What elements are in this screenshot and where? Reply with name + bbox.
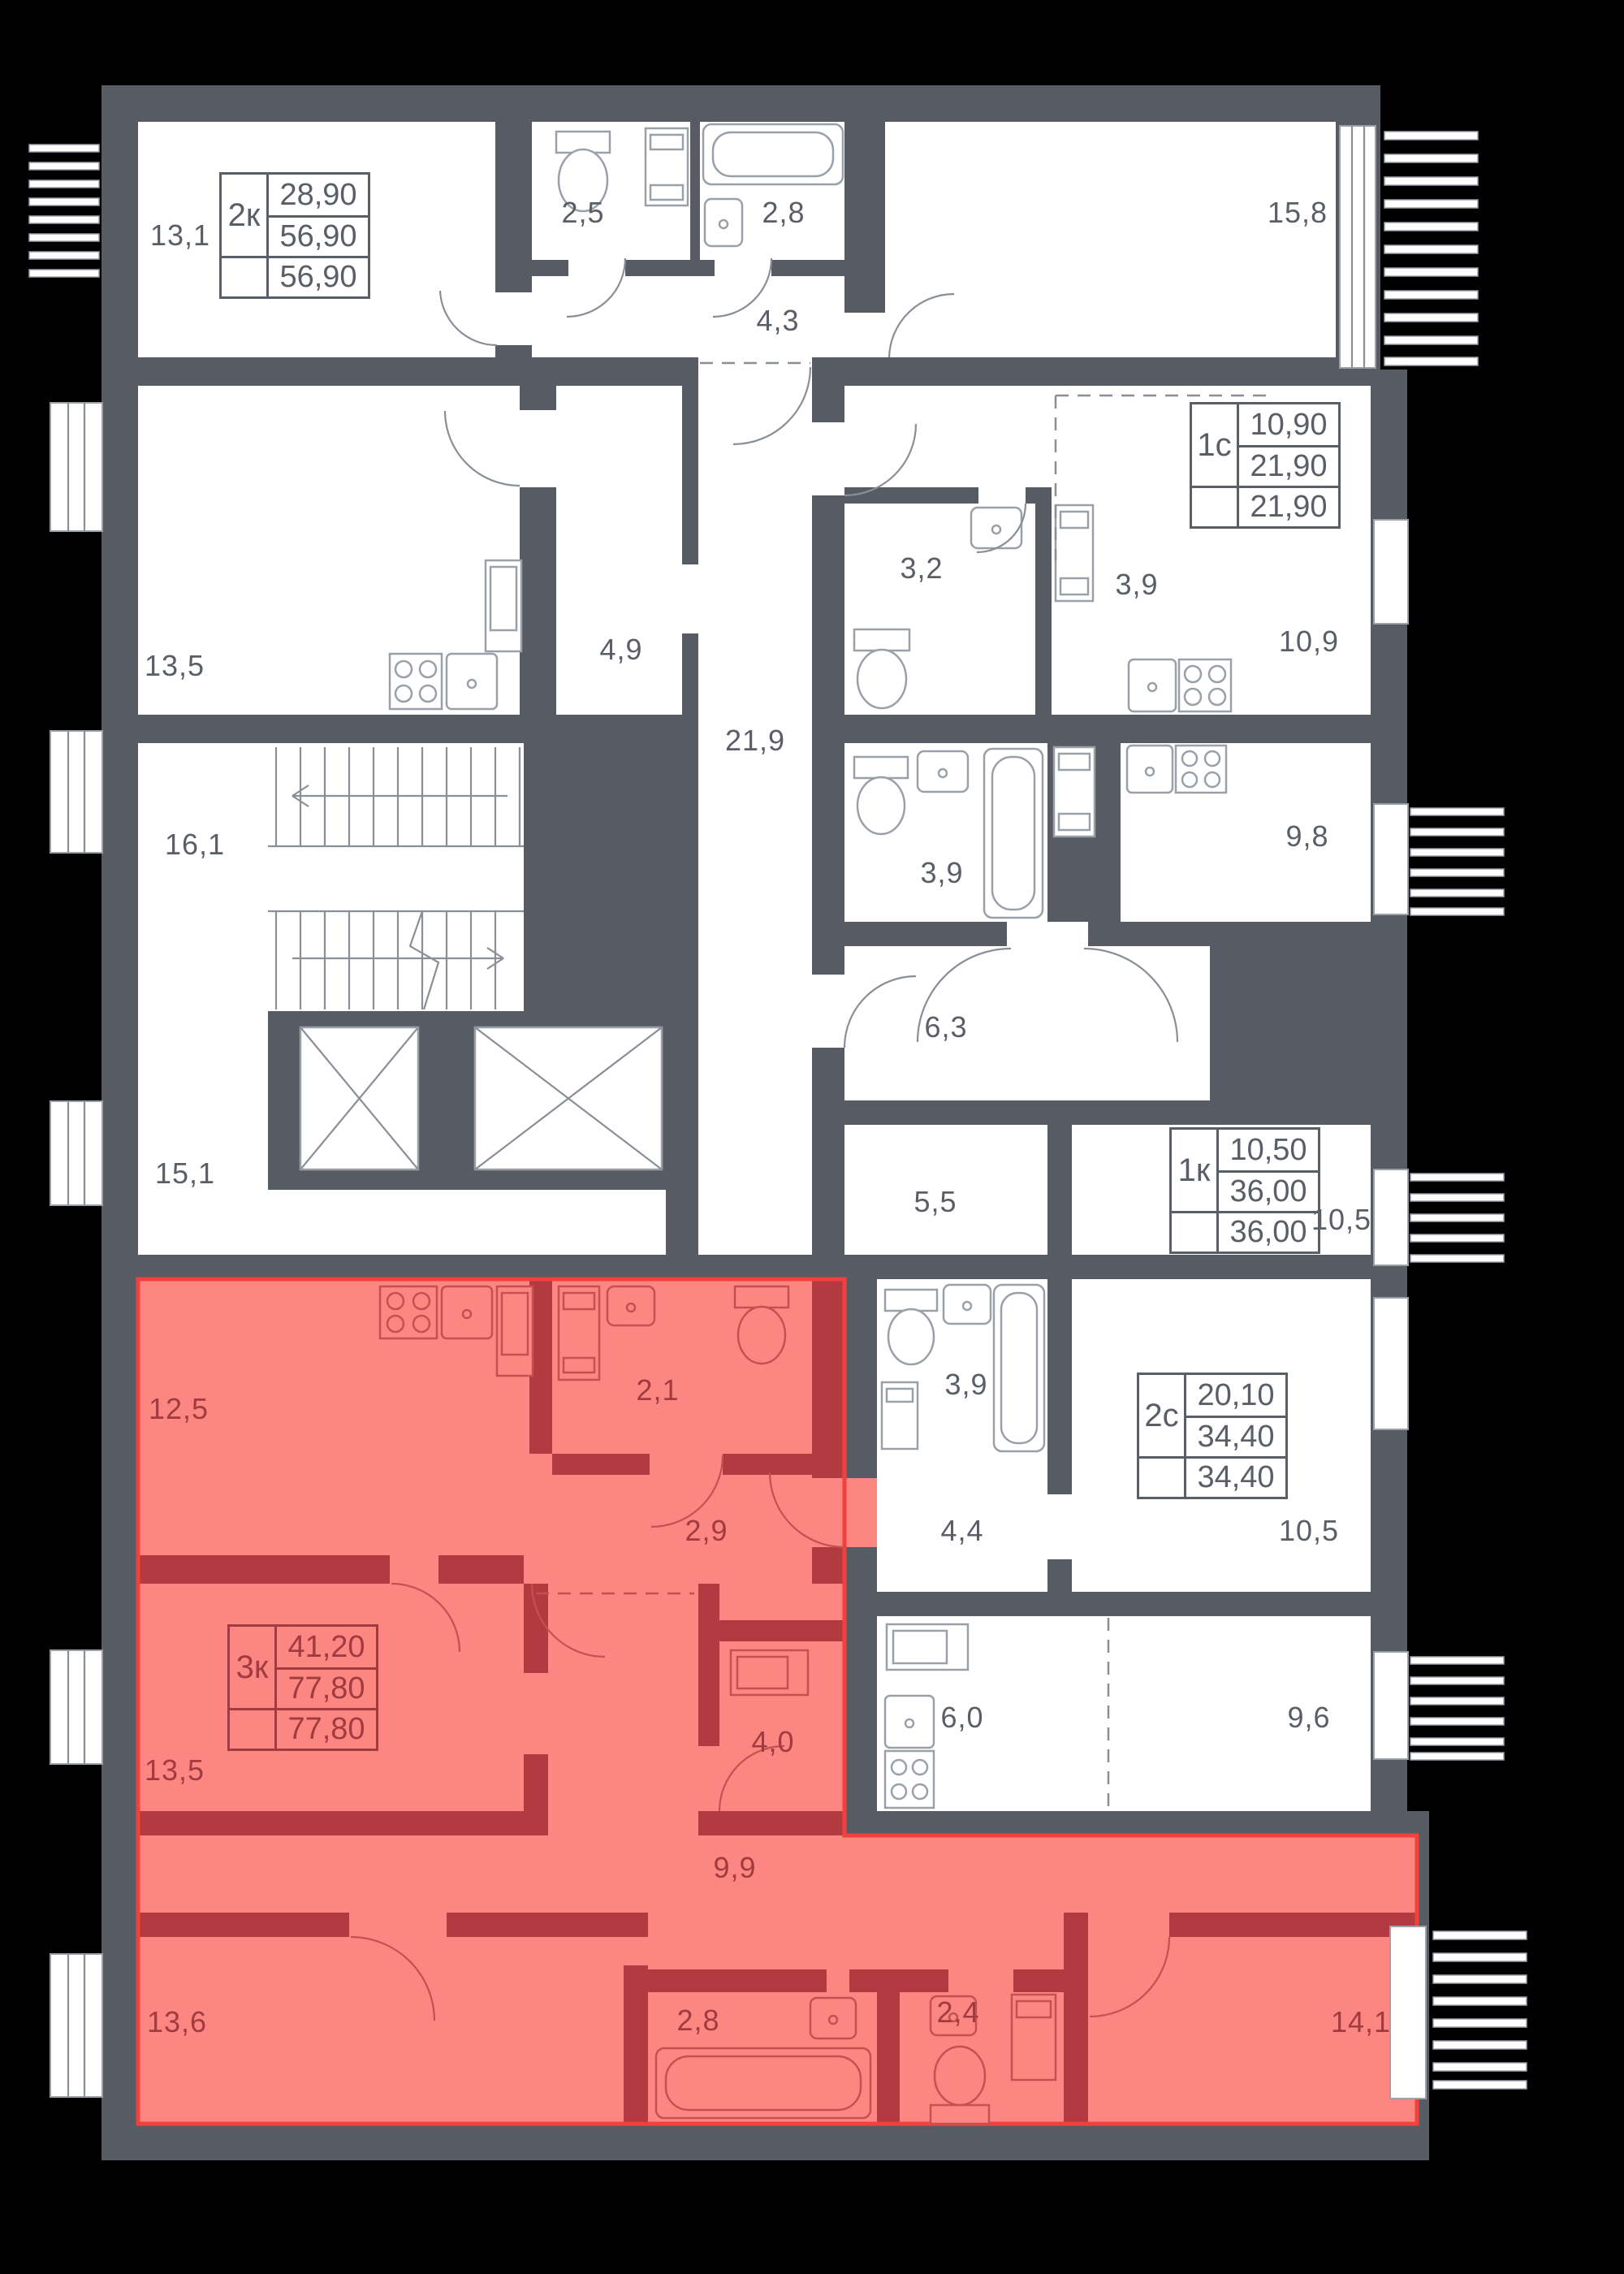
apartment-living-area: 20,10 <box>1186 1375 1285 1416</box>
apartment-type-spacer <box>1172 1211 1219 1252</box>
apartment-type-spacer <box>230 1708 277 1749</box>
apartment-type-label: 2с <box>1139 1375 1186 1456</box>
apartment-total-area: 21,90 <box>1239 486 1338 526</box>
room-area-label: 2,8 <box>762 196 805 230</box>
room-area-label: 2,4 <box>936 1995 979 2030</box>
room-area-label: 4,3 <box>756 304 799 338</box>
apartment-table-2s: 2с 20,10 34,40 34,40 <box>1137 1373 1288 1499</box>
room-area-label: 2,5 <box>561 196 604 230</box>
room-area-label: 13,5 <box>145 1753 205 1788</box>
apartment-total-area: 56,90 <box>269 256 368 296</box>
apartment-living-area: 10,50 <box>1219 1130 1318 1170</box>
room-area-label: 12,5 <box>149 1392 209 1426</box>
room-area-label: 9,9 <box>713 1851 756 1885</box>
room-area-label: 10,9 <box>1279 625 1339 659</box>
apartment-table-2k: 2к 28,90 56,90 56,90 <box>219 172 370 299</box>
room-area-label: 21,9 <box>725 724 785 758</box>
apartment-total-area: 77,80 <box>277 1708 376 1749</box>
apartment-area: 21,90 <box>1239 445 1338 486</box>
apartment-living-area: 41,20 <box>277 1627 376 1667</box>
apartment-type-label: 1к <box>1172 1130 1219 1211</box>
room-area-label: 3,9 <box>920 856 963 890</box>
apartment-area: 36,00 <box>1219 1170 1318 1211</box>
apartment-area: 34,40 <box>1186 1416 1285 1456</box>
room-area-label: 15,8 <box>1268 196 1328 230</box>
apartment-total-area: 36,00 <box>1219 1211 1318 1252</box>
apartment-area: 56,90 <box>269 215 368 256</box>
apartment-table-1s: 1с 10,90 21,90 21,90 <box>1190 402 1341 529</box>
apartment-table-3k-highlighted: 3к 41,20 77,80 77,80 <box>227 1624 378 1751</box>
room-area-label: 13,6 <box>147 2005 207 2039</box>
apartment-type-spacer <box>222 256 269 296</box>
apartment-type-label: 1с <box>1192 404 1239 486</box>
room-area-label: 9,8 <box>1285 819 1328 854</box>
apartment-total-area: 34,40 <box>1186 1456 1285 1497</box>
room-area-label: 4,0 <box>751 1725 794 1759</box>
room-area-label: 10,5 <box>1279 1514 1339 1548</box>
room-area-label: 3,2 <box>900 551 943 586</box>
apartment-type-spacer <box>1139 1456 1186 1497</box>
room-area-label: 9,6 <box>1287 1701 1330 1735</box>
apartment-living-area: 28,90 <box>269 175 368 215</box>
room-area-label: 6,3 <box>924 1010 967 1044</box>
room-area-label: 4,9 <box>599 633 642 667</box>
room-area-label: 15,1 <box>155 1156 215 1191</box>
apartment-type-label: 3к <box>230 1627 277 1708</box>
room-area-label: 2,8 <box>676 2004 719 2038</box>
room-area-label: 2,9 <box>685 1514 728 1548</box>
room-area-label: 2,1 <box>636 1373 679 1407</box>
floor-plan: 13,1 2,5 2,8 4,3 15,8 13,5 4,9 3,9 3,2 1… <box>0 0 1624 2274</box>
room-area-label: 6,0 <box>940 1701 983 1735</box>
floor-plan-drawing <box>0 0 1624 2274</box>
room-area-label: 4,4 <box>940 1514 983 1548</box>
room-area-label: 16,1 <box>165 828 225 862</box>
room-area-label: 13,1 <box>150 218 210 253</box>
room-area-label: 5,5 <box>914 1185 957 1219</box>
room-area-label: 10,5 <box>1311 1203 1371 1237</box>
apartment-table-1k: 1к 10,50 36,00 36,00 <box>1169 1127 1320 1254</box>
room-area-label: 13,5 <box>145 649 205 683</box>
room-area-label: 3,9 <box>944 1368 987 1402</box>
room-area-label: 14,1 <box>1331 2005 1391 2039</box>
apartment-type-spacer <box>1192 486 1239 526</box>
apartment-living-area: 10,90 <box>1239 404 1338 445</box>
apartment-type-label: 2к <box>222 175 269 256</box>
apartment-area: 77,80 <box>277 1667 376 1708</box>
room-area-label: 3,9 <box>1115 568 1158 602</box>
